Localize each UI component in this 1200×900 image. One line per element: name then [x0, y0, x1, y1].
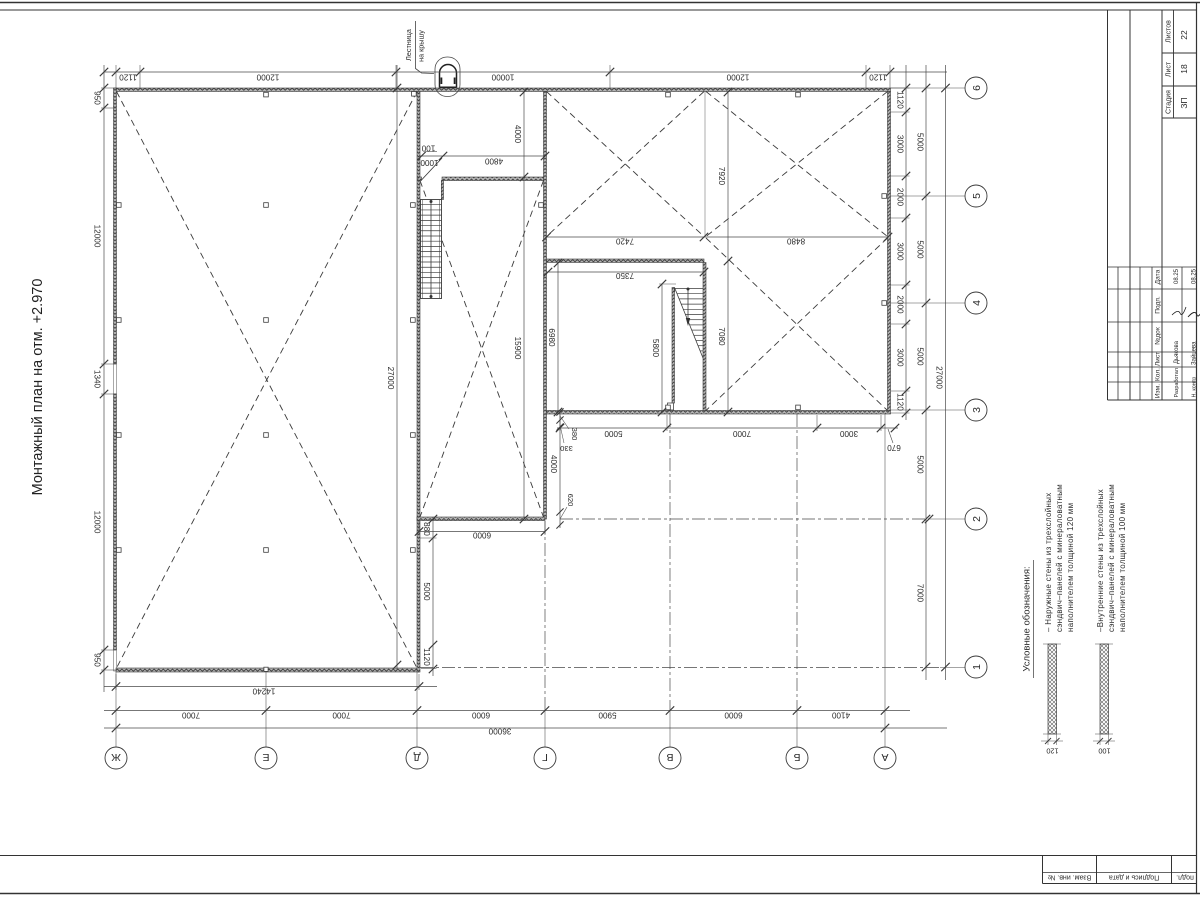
svg-text:ЗП: ЗП: [1179, 97, 1189, 108]
svg-text:наполнителем толщиной 100 мм: наполнителем толщиной 100 мм: [1118, 503, 1127, 632]
svg-text:Лист: Лист: [1166, 61, 1173, 77]
svg-text:4100: 4100: [831, 711, 850, 720]
svg-text:3000: 3000: [896, 135, 905, 154]
svg-text:7000: 7000: [732, 429, 751, 438]
svg-text:5000: 5000: [916, 455, 925, 474]
svg-text:14240: 14240: [252, 687, 275, 696]
svg-text:5000: 5000: [916, 240, 925, 259]
svg-text:08.25: 08.25: [1174, 268, 1180, 284]
svg-text:Д: Д: [413, 751, 420, 763]
svg-text:Подпись и дата: Подпись и дата: [1109, 873, 1159, 880]
svg-text:8480: 8480: [786, 237, 805, 246]
svg-text:7000: 7000: [916, 584, 925, 603]
svg-text:10000: 10000: [491, 73, 514, 82]
svg-text:5800: 5800: [651, 339, 660, 358]
svg-text:620: 620: [566, 494, 575, 507]
svg-text:6000: 6000: [472, 531, 491, 540]
svg-text:Взам. инв. №: Взам. инв. №: [1048, 873, 1091, 880]
svg-text:1120: 1120: [896, 91, 905, 109]
svg-text:1120: 1120: [119, 73, 137, 82]
svg-text:№док: №док: [1154, 327, 1161, 345]
svg-text:Лист: Лист: [1154, 352, 1161, 366]
svg-text:4800: 4800: [484, 157, 503, 166]
svg-text:950: 950: [93, 653, 102, 667]
svg-text:2: 2: [971, 516, 983, 522]
svg-text:12000: 12000: [726, 73, 749, 82]
svg-text:Зайцева: Зайцева: [1191, 341, 1198, 365]
svg-text:7920: 7920: [717, 167, 726, 186]
svg-text:наполнителем толщиной 120 мм: наполнителем толщиной 120 мм: [1066, 503, 1075, 632]
svg-text:1120: 1120: [422, 648, 431, 666]
svg-text:950: 950: [93, 91, 102, 105]
svg-text:4000: 4000: [549, 455, 558, 474]
svg-text:3000: 3000: [896, 348, 905, 367]
svg-text:Б: Б: [793, 751, 800, 763]
svg-text:2000: 2000: [896, 188, 905, 207]
svg-text:Изм.: Изм.: [1154, 384, 1161, 398]
svg-text:2000: 2000: [896, 295, 905, 314]
svg-text:5: 5: [971, 193, 983, 199]
svg-text:5000: 5000: [422, 582, 431, 601]
svg-text:4000: 4000: [513, 125, 522, 144]
svg-text:3000: 3000: [839, 429, 858, 438]
svg-text:670: 670: [887, 443, 901, 452]
svg-text:6000: 6000: [471, 711, 490, 720]
svg-text:12000: 12000: [256, 73, 279, 82]
svg-text:1120: 1120: [896, 393, 905, 411]
svg-text:Листов: Листов: [1166, 20, 1173, 43]
svg-text:36000: 36000: [488, 727, 511, 736]
svg-text:6980: 6980: [547, 328, 556, 347]
svg-text:Ж: Ж: [111, 751, 121, 763]
svg-text:6000: 6000: [724, 711, 743, 720]
svg-text:1: 1: [971, 664, 983, 670]
svg-text:Н. контр: Н. контр: [1191, 377, 1197, 398]
svg-text:сэндвич–панелей с минераловатн: сэндвич–панелей с минераловатным: [1055, 484, 1064, 632]
svg-text:Г: Г: [542, 751, 548, 763]
svg-text:5900: 5900: [598, 711, 617, 720]
svg-text:Дьякова: Дьякова: [1174, 340, 1180, 364]
svg-text:Лестница: Лестница: [404, 29, 413, 61]
svg-text:Е: Е: [262, 751, 269, 763]
svg-text:120: 120: [1046, 746, 1058, 755]
svg-text:6: 6: [971, 85, 983, 91]
svg-text:1000: 1000: [420, 158, 439, 167]
svg-text:27000: 27000: [386, 367, 395, 390]
svg-text:А: А: [881, 751, 888, 763]
svg-text:подл.: подл.: [1176, 873, 1194, 880]
svg-text:1120: 1120: [869, 73, 887, 82]
svg-text:сэндвич–панелей с минераловатн: сэндвич–панелей с минераловатным: [1107, 484, 1116, 632]
svg-text:–Внутренние стены из трехслойн: –Внутренние стены из трехслойных: [1096, 489, 1105, 632]
svg-text:100: 100: [421, 144, 435, 153]
svg-text:7080: 7080: [717, 327, 726, 346]
svg-text:Дата: Дата: [1154, 269, 1161, 284]
svg-text:на крышу: на крышу: [417, 30, 426, 62]
svg-text:27000: 27000: [935, 366, 944, 389]
svg-text:Кол.: Кол.: [1154, 368, 1161, 381]
svg-text:Подп.: Подп.: [1154, 296, 1161, 314]
svg-text:380: 380: [570, 428, 579, 441]
svg-text:12000: 12000: [93, 225, 102, 248]
svg-text:Условные обозначения:: Условные обозначения:: [1021, 566, 1032, 671]
svg-text:В: В: [666, 751, 673, 763]
svg-text:18: 18: [1179, 64, 1189, 74]
svg-text:1340: 1340: [93, 370, 102, 389]
svg-text:880: 880: [422, 522, 431, 536]
svg-text:5000: 5000: [916, 133, 925, 152]
svg-text:15900: 15900: [513, 337, 522, 360]
svg-text:7350: 7350: [615, 271, 634, 280]
svg-text:5000: 5000: [604, 429, 623, 438]
svg-text:Монтажный план на отм. +2.970: Монтажный план на отм. +2.970: [30, 279, 46, 496]
svg-text:100: 100: [1098, 746, 1110, 755]
svg-text:22: 22: [1179, 30, 1189, 40]
svg-text:4: 4: [971, 300, 983, 306]
svg-text:7420: 7420: [615, 237, 634, 246]
svg-text:330: 330: [560, 444, 573, 453]
svg-text:Стадия: Стадия: [1166, 90, 1173, 114]
svg-text:12000: 12000: [93, 511, 102, 534]
svg-text:7000: 7000: [181, 711, 200, 720]
svg-text:– Наружные стены из трехслойны: – Наружные стены из трехслойных: [1044, 492, 1053, 632]
svg-text:3: 3: [971, 407, 983, 413]
svg-text:7000: 7000: [332, 711, 351, 720]
svg-text:08.25: 08.25: [1192, 268, 1198, 284]
svg-text:Разработал: Разработал: [1174, 368, 1180, 397]
svg-text:3000: 3000: [896, 242, 905, 261]
svg-text:5000: 5000: [916, 347, 925, 366]
